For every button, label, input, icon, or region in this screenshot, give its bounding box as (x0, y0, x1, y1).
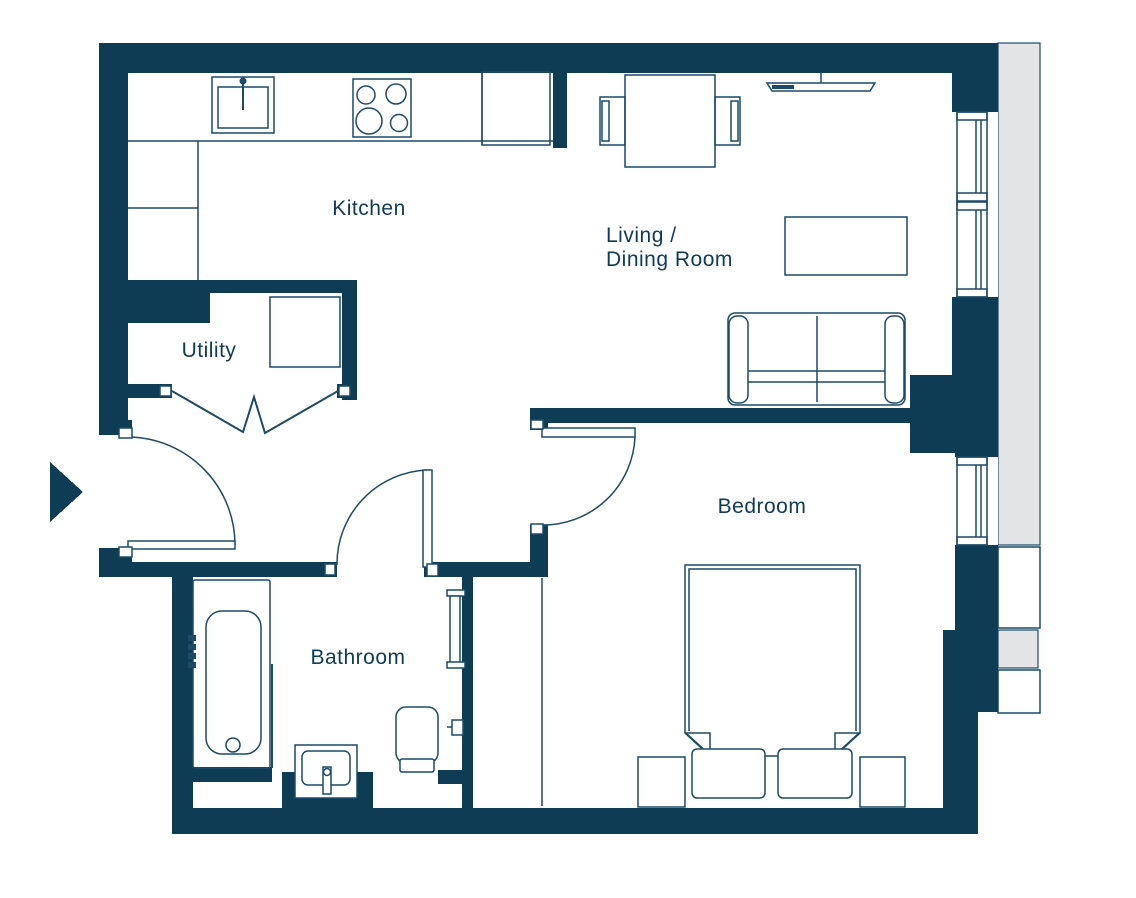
bathroom-fixtures (188, 580, 465, 798)
exterior-box (998, 670, 1040, 713)
door-jamb (119, 428, 132, 438)
door-jamb (427, 564, 438, 576)
exterior-box (998, 630, 1038, 668)
bathroom-door (325, 470, 438, 576)
utility-fixtures (270, 297, 340, 367)
exterior-strip (998, 43, 1040, 545)
bathtub (193, 580, 270, 768)
toilet (396, 707, 438, 772)
wall-segment (99, 562, 337, 577)
wall-segment (99, 43, 998, 73)
door-jamb (325, 564, 335, 575)
entrance-door (119, 428, 235, 557)
bedroom-window (952, 457, 998, 545)
exterior-box (998, 547, 1040, 628)
utility-bifold-doors (160, 386, 350, 433)
kitchen-label: Kitchen (332, 197, 406, 220)
floor-plan: Kitchen Living / Dining Room Utility Bat… (0, 0, 1136, 898)
bath-ledge (172, 767, 272, 782)
entrance-door-leaf (128, 541, 235, 549)
wall-segment (172, 577, 193, 834)
door-jamb (119, 547, 132, 557)
basin (295, 745, 357, 798)
bathroom-label: Bathroom (310, 646, 405, 669)
living-room-window (952, 112, 998, 297)
hob (353, 79, 411, 137)
wall-segment (952, 297, 998, 377)
kitchen-fixtures (128, 71, 553, 280)
wall-segment (943, 712, 978, 834)
wall-segment (955, 545, 998, 630)
door-jamb (531, 524, 543, 534)
living-dining-label-line1: Living / (606, 224, 677, 247)
bedroom-label: Bedroom (718, 495, 807, 518)
bedroom-furniture (542, 565, 905, 807)
wall-segment (910, 375, 998, 453)
sofa (728, 313, 905, 405)
bathroom-door-leaf (423, 470, 432, 567)
wall-segment (424, 562, 548, 577)
bedroom-door (531, 420, 635, 534)
wall-segment (943, 630, 998, 712)
utility-label: Utility (182, 339, 237, 362)
door-jamb (160, 386, 171, 396)
entrance-arrow (50, 462, 83, 522)
kitchen-sink (212, 77, 274, 133)
wall-tv (767, 73, 875, 91)
wall-segment (172, 808, 978, 834)
worktop (128, 71, 553, 280)
door-jamb (531, 420, 543, 429)
exterior-structures (998, 43, 1040, 713)
wall-segment (128, 280, 357, 293)
dining-chair (715, 97, 740, 145)
pillow (692, 749, 765, 798)
bedside-table (638, 757, 685, 807)
dining-table (625, 75, 715, 167)
walls (99, 43, 998, 834)
floor-plan-canvas: Kitchen Living / Dining Room Utility Bat… (0, 0, 1136, 898)
washing-machine (270, 297, 340, 367)
wall-segment (530, 408, 952, 423)
pillow (778, 749, 852, 798)
bedroom-door-leaf (542, 428, 635, 437)
wall-segment (955, 451, 998, 457)
living-dining-label-line2: Dining Room (606, 248, 733, 271)
wall-segment (553, 71, 567, 148)
toilet-roll-holder (447, 720, 463, 735)
wall-segment (342, 280, 357, 400)
bedside-table (860, 757, 905, 807)
coffee-table (785, 217, 907, 275)
wall-segment (438, 770, 462, 784)
wall-segment (462, 577, 473, 817)
wall-segment (952, 73, 998, 112)
dining-chair (600, 97, 625, 145)
door-jamb (339, 386, 350, 396)
wall-segment (99, 73, 128, 435)
tall-unit (482, 72, 550, 145)
double-bed (685, 565, 860, 798)
wall-segment (128, 293, 210, 323)
